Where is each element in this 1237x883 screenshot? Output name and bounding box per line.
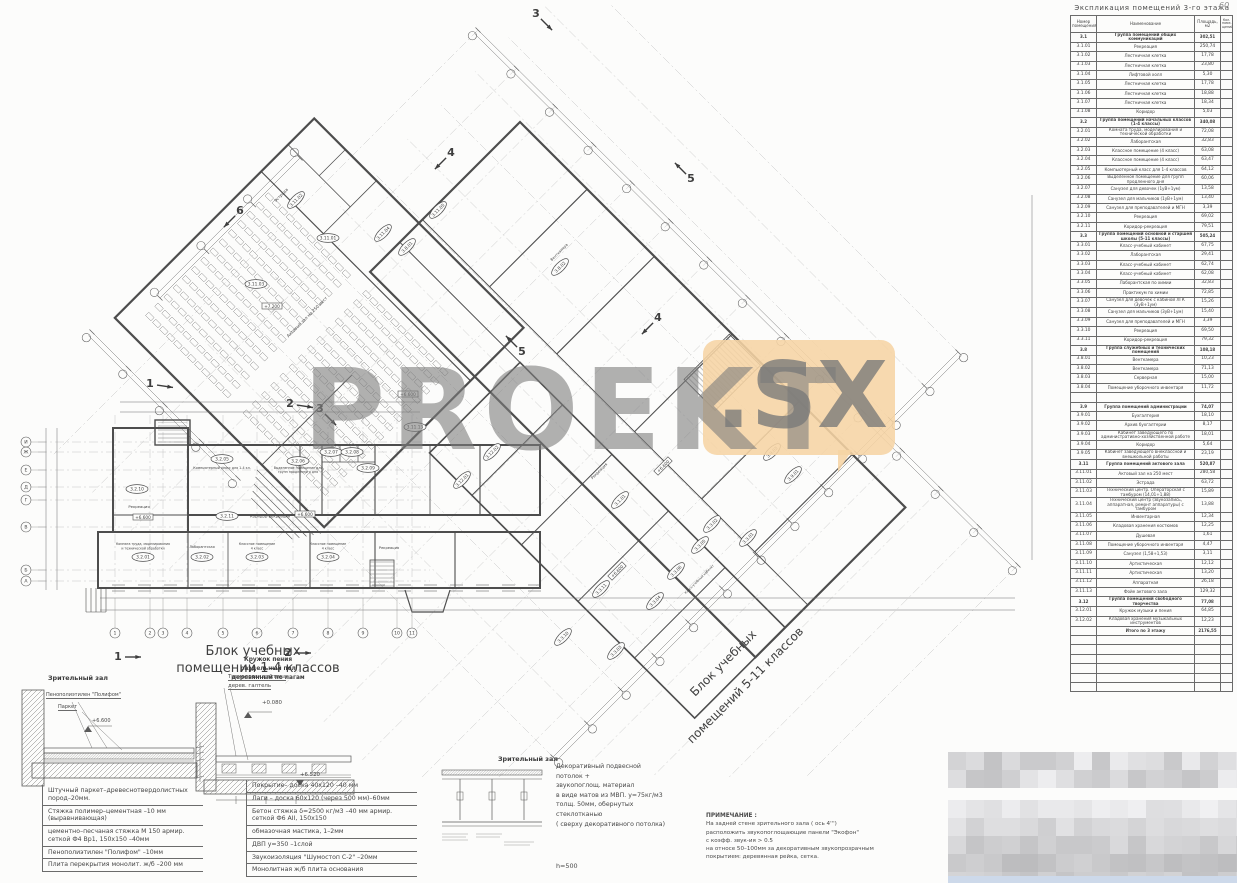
table-row [1071, 645, 1233, 654]
cell-name: Бухгалтерия [1097, 412, 1195, 421]
cell-name [1097, 673, 1195, 682]
cell-cnt [1221, 393, 1233, 402]
plan-label: Комната труда, моделирования [116, 542, 170, 546]
cell-cnt [1221, 374, 1233, 383]
table-row: 3.2.11Коридор-рекреация79,51 [1071, 222, 1233, 231]
layer-item: Штучный паркет–древеснотвердолистных пор… [43, 785, 203, 806]
cell-name: Рекреация [1097, 327, 1195, 336]
cell-area: 12,25 [1195, 522, 1221, 531]
cell-num [1071, 635, 1097, 644]
table-row: 3.12.01Кружок музыки и пения64,85 [1071, 607, 1233, 616]
cell-num: 3.3.11 [1071, 336, 1097, 345]
censor-cell [1128, 836, 1146, 854]
cell-name: Комната труда, моделирования и техническ… [1097, 127, 1195, 137]
cell-area: 11,72 [1195, 383, 1221, 392]
cell-name: Санузел (1,58+1,53) [1097, 550, 1195, 559]
svg-text:9: 9 [362, 631, 365, 637]
room-tag: 3.2.01 [132, 553, 154, 562]
cell-area: 2176,55 [1195, 626, 1221, 635]
cell-cnt [1221, 185, 1233, 194]
cell-name: Группа служебных и технических помещений [1097, 345, 1195, 355]
cell-area: 10,23 [1195, 355, 1221, 364]
cell-area: 8,17 [1195, 421, 1221, 430]
cell-area: 77,08 [1195, 597, 1221, 607]
cell-cnt [1221, 137, 1233, 146]
cell-area: 15,00 [1195, 374, 1221, 383]
table-row: 3.11.02Эстрада63,72 [1071, 478, 1233, 487]
cell-area: 18,34 [1195, 99, 1221, 108]
table-row: 3.3Группа помещений основной и старшей ш… [1071, 232, 1233, 242]
censor-cell [1218, 836, 1236, 854]
cell-name: Лестничная клетка [1097, 89, 1195, 98]
svg-text:В: В [24, 525, 27, 531]
cell-num: 3.3.09 [1071, 317, 1097, 326]
censor-cell [1200, 800, 1218, 818]
cell-area: 17,78 [1195, 80, 1221, 89]
table-row: 3.11.10Артистическая12,12 [1071, 559, 1233, 568]
room-tag: 3.2.11 [216, 512, 238, 521]
cell-name: Кабинет заведующего по административно-х… [1097, 430, 1195, 440]
table-row: 3.1.02Лестничная клетка17,78 [1071, 52, 1233, 61]
svg-text:10: 10 [394, 631, 400, 637]
censor-cell [1110, 752, 1128, 770]
cell-area: 23,19 [1195, 450, 1221, 460]
layer-item: Пенополиэтилен "Полифом" –10мм [43, 847, 203, 860]
table-row: 3.2.04Классное помещение (4 класс)63,47 [1071, 156, 1233, 165]
room-tag: 3.3.04 [644, 590, 666, 612]
layer-item: Покрытие– доска 40х120 –40 мм [247, 780, 417, 793]
room-tag: 3.11.01 [317, 234, 339, 243]
censor-cell [1002, 818, 1020, 836]
cell-cnt [1221, 156, 1233, 165]
table-row: 3.3.11Коридор-рекреация79,32 [1071, 336, 1233, 345]
cell-num: 3.12.02 [1071, 616, 1097, 626]
cell-area: 72,08 [1195, 127, 1221, 137]
cell-num: 3.11.06 [1071, 522, 1097, 531]
svg-text:6: 6 [256, 631, 259, 637]
cell-cnt [1221, 421, 1233, 430]
cell-name: Лестничная клетка [1097, 80, 1195, 89]
svg-text:7: 7 [292, 631, 295, 637]
cell-area [1195, 393, 1221, 402]
cell-area [1195, 664, 1221, 673]
detail-parquet-floor [22, 690, 204, 786]
cell-name: Санузел для мальчиков (1уВ+1ум) [1097, 194, 1195, 203]
cell-num: 3.9.02 [1071, 421, 1097, 430]
cell-cnt [1221, 498, 1233, 513]
table-row: 3.8.04Помещение уборочного инвентаря11,7… [1071, 383, 1233, 392]
layer-item: Звукоизоляция "Шумостоп С-2" –20мм [247, 852, 417, 865]
censor-cell [1056, 800, 1074, 818]
table-row: 3.3.04Класс-учебный кабинет62,08 [1071, 270, 1233, 279]
col-header-name: Наименование [1097, 16, 1195, 33]
cell-num: 3.2.10 [1071, 213, 1097, 222]
cell-cnt [1221, 175, 1233, 185]
room-tag: 3.2.08 [341, 448, 363, 457]
watermark-bubble-tail [838, 450, 852, 472]
table-row: 3.9.03Кабинет заведующего по администрат… [1071, 430, 1233, 440]
cell-name: Санузел для девочек с кабиной ЛГК (3уВ+1… [1097, 298, 1195, 308]
svg-text:+6.600: +6.600 [610, 564, 625, 579]
censor-cell [1182, 818, 1200, 836]
censor-cell [1200, 752, 1218, 770]
table-row: 3.3.05Лаборантская по химии32,83 [1071, 279, 1233, 288]
table-row: 3.2.08Санузел для мальчиков (1уВ+1ум)13,… [1071, 194, 1233, 203]
svg-text:+6.600: +6.600 [135, 515, 151, 520]
cell-name: Группа помещений общих коммуникаций [1097, 33, 1195, 43]
cell-area: 69,02 [1195, 213, 1221, 222]
elevation-mark: +6.600 [295, 511, 315, 517]
cell-num: 3.1.08 [1071, 108, 1097, 117]
cell-area: 5,30 [1195, 70, 1221, 79]
censor-cell [948, 800, 966, 818]
table-row: 3.2.01Комната труда, моделирования и тех… [1071, 127, 1233, 137]
cell-area: 13,20 [1195, 569, 1221, 578]
cell-area: 1,61 [1195, 531, 1221, 540]
cell-cnt [1221, 204, 1233, 213]
table-row [1071, 673, 1233, 682]
cell-area: 64,85 [1195, 607, 1221, 616]
detail1-title: Зрительный зал [48, 674, 108, 682]
cell-cnt [1221, 460, 1233, 469]
table-row: Итого по 3 этажу2176,55 [1071, 626, 1233, 635]
cell-name: Кабинет заведующего внеклассной и внешко… [1097, 450, 1195, 460]
cell-num: 3.8.02 [1071, 365, 1097, 374]
cell-name: Кладовая хранения костюмов [1097, 522, 1195, 531]
censor-cell [1056, 818, 1074, 836]
cell-cnt [1221, 260, 1233, 269]
cell-cnt [1221, 336, 1233, 345]
cell-area [1195, 654, 1221, 663]
cell-area: 5,64 [1195, 440, 1221, 449]
section-mark: 1 [114, 650, 141, 663]
plan-label: Классное помещение [310, 542, 346, 546]
cell-cnt [1221, 345, 1233, 355]
svg-text:1: 1 [114, 631, 117, 637]
cell-area: 520,87 [1195, 460, 1221, 469]
cell-cnt [1221, 664, 1233, 673]
cell-num: 3.3.08 [1071, 308, 1097, 317]
note-line: расположить звукопоглощающие панели "Эко… [706, 829, 956, 837]
cell-name: Коридор [1097, 108, 1195, 117]
cell-area: 108,18 [1195, 345, 1221, 355]
censor-cell [1200, 836, 1218, 854]
svg-text:3: 3 [532, 7, 540, 20]
cell-cnt [1221, 194, 1233, 203]
cell-name: Артистическая [1097, 569, 1195, 578]
svg-text:6: 6 [236, 204, 244, 217]
censor-cell [1182, 836, 1200, 854]
cell-cnt [1221, 308, 1233, 317]
cell-num: 3.1.06 [1071, 89, 1097, 98]
svg-text:8: 8 [327, 631, 330, 637]
table-row: 3.11.11Артистическая13,20 [1071, 569, 1233, 578]
table-row: 3.11.08Помещение уборочного инвентаря4,4… [1071, 541, 1233, 550]
censor-cell [1002, 800, 1020, 818]
cell-cnt [1221, 626, 1233, 635]
censor-cell [966, 800, 984, 818]
note-line: на относе 50–100мм за декоративным звуко… [706, 845, 956, 853]
room-tag: 3.2.04 [317, 553, 339, 562]
cell-num [1071, 682, 1097, 691]
svg-text:4: 4 [654, 311, 662, 324]
cell-name: Архив бухгалтерии [1097, 421, 1195, 430]
cell-num: 3.2.07 [1071, 185, 1097, 194]
cell-area: 32,83 [1195, 137, 1221, 146]
cell-cnt [1221, 165, 1233, 174]
table-row: 3.1.03Лестничная клетка23,80 [1071, 61, 1233, 70]
cell-cnt [1221, 478, 1233, 487]
cell-name: Санузел для преподавателей и МГН [1097, 317, 1195, 326]
cell-cnt [1221, 327, 1233, 336]
censor-cell [984, 752, 1002, 770]
detail1-callout-2: Паркет [58, 704, 77, 711]
svg-text:Е: Е [25, 468, 28, 474]
svg-text:3.2.07: 3.2.07 [324, 450, 338, 456]
cell-name: Класс-учебный кабинет [1097, 241, 1195, 250]
censor-cell [966, 854, 984, 872]
cell-area: 67,75 [1195, 241, 1221, 250]
detail3-scale: h=500 [556, 862, 578, 870]
table-row: 3.11.03Технический центр. Операторская с… [1071, 488, 1233, 498]
cell-num: 3.1.01 [1071, 42, 1097, 51]
table-row: 3.8.01Венткамера10,23 [1071, 355, 1233, 364]
censor-cell [1056, 770, 1074, 788]
censor-cell [1110, 770, 1128, 788]
censor-cell [966, 818, 984, 836]
cell-area: 3,39 [1195, 317, 1221, 326]
page-corner-mark: 60 [1219, 1, 1229, 10]
censor-cell [1056, 752, 1074, 770]
cell-cnt [1221, 42, 1233, 51]
table-row [1071, 682, 1233, 691]
cell-cnt [1221, 682, 1233, 691]
cell-cnt [1221, 645, 1233, 654]
table-row: 3.2.05Компьютерный класс для 1-4 классов… [1071, 165, 1233, 174]
cell-num: 3.8.03 [1071, 374, 1097, 383]
cell-cnt [1221, 587, 1233, 596]
cell-area: 18,88 [1195, 89, 1221, 98]
cell-cnt [1221, 117, 1233, 127]
svg-text:5: 5 [687, 172, 695, 185]
cell-num: 3.11.07 [1071, 531, 1097, 540]
censor-cell [1110, 818, 1128, 836]
cell-cnt [1221, 635, 1233, 644]
table-row: 3.1.01Рекреация250,74 [1071, 42, 1233, 51]
censor-cell [1110, 800, 1128, 818]
cell-num: 3.8.04 [1071, 383, 1097, 392]
cell-area: 15,26 [1195, 298, 1221, 308]
cell-cnt [1221, 61, 1233, 70]
cell-cnt [1221, 607, 1233, 616]
table-row: 3.8.03Серверная15,00 [1071, 374, 1233, 383]
section-mark: 4 [435, 146, 455, 169]
cell-area: 63,72 [1195, 478, 1221, 487]
cell-cnt [1221, 298, 1233, 308]
cell-num: 3.3.03 [1071, 260, 1097, 269]
cell-name: Лестничная клетка [1097, 52, 1195, 61]
censor-cell [984, 854, 1002, 872]
cell-num: 3.2.04 [1071, 156, 1097, 165]
cell-area: 13,58 [1195, 185, 1221, 194]
cell-cnt [1221, 279, 1233, 288]
cell-area: 12,34 [1195, 512, 1221, 521]
cell-name [1097, 635, 1195, 644]
cell-area: 3,39 [1195, 204, 1221, 213]
table-row: 3.2.02Лаборантская32,83 [1071, 137, 1233, 146]
censor-cell [1164, 818, 1182, 836]
table-row [1071, 664, 1233, 673]
cell-num: 3.9.01 [1071, 412, 1097, 421]
layer-item: Лаги – доска 60х120 (через 500 мм)–60мм [247, 793, 417, 806]
plan-label: Класс-учебный кабинет [684, 564, 715, 595]
censor-cell [1182, 752, 1200, 770]
censor-cell [1074, 854, 1092, 872]
cell-name: Санузел для девочек (1уВ+1ум) [1097, 185, 1195, 194]
table-row: 3.9Группа помещений администрации74,07 [1071, 402, 1233, 411]
table-row: 3.3.08Санузел для мальчиков (3уВ+1ум)15,… [1071, 308, 1233, 317]
detail1-layer-list: Штучный паркет–древеснотвердолистных пор… [42, 785, 203, 872]
elevation-mark: +6.600 [133, 514, 153, 520]
layer-item: обмазочная мастика, 1–2мм [247, 826, 417, 839]
cell-name: Артистическая [1097, 559, 1195, 568]
cell-num: 3.3.06 [1071, 288, 1097, 297]
cell-cnt [1221, 89, 1233, 98]
cell-cnt [1221, 616, 1233, 626]
section-mark: 5 [675, 163, 695, 185]
censor-cell [1020, 800, 1038, 818]
table-row: 3.11.12Аппаратная26,18 [1071, 578, 1233, 587]
note-label: ПРИМЕЧАНИЕ : [706, 812, 956, 820]
cell-area: 63,08 [1195, 147, 1221, 156]
cell-name: Выделенное помещение для групп продленно… [1097, 175, 1195, 185]
cell-num: 3.11.04 [1071, 498, 1097, 513]
cell-name: Лаборантская [1097, 251, 1195, 260]
col-header-area: Площадь, м2 [1195, 16, 1221, 33]
detail-suspended-ceiling [442, 770, 542, 845]
cell-num: 3.1.02 [1071, 52, 1097, 61]
table-row: 3.3.01Класс-учебный кабинет67,75 [1071, 241, 1233, 250]
censor-cell [1056, 854, 1074, 872]
censor-cell [948, 818, 966, 836]
cell-name: Лестничная клетка [1097, 61, 1195, 70]
room-tag: 3.2.05 [211, 455, 233, 464]
col-header-number: Номер помещения [1071, 16, 1097, 33]
table-row: 3.3.02Лаборантская29,41 [1071, 251, 1233, 260]
cell-area: 64,12 [1195, 165, 1221, 174]
cell-cnt [1221, 232, 1233, 242]
censor-cell [948, 854, 966, 872]
censor-cell [1038, 818, 1056, 836]
svg-text:2: 2 [284, 646, 292, 659]
svg-text:3.2.10: 3.2.10 [130, 487, 144, 493]
cell-num: 3.8 [1071, 345, 1097, 355]
cell-cnt [1221, 654, 1233, 663]
room-tag: 3.1.01 [609, 489, 631, 511]
explication-table: Номер помещения Наименование Площадь, м2… [1070, 15, 1233, 692]
cell-name: Группа помещений актового зала [1097, 460, 1195, 469]
section-mark: 4 [642, 311, 662, 334]
censor-cell [966, 770, 984, 788]
cell-num: 3.1.03 [1071, 61, 1097, 70]
cell-cnt [1221, 108, 1233, 117]
svg-text:Б: Б [24, 568, 27, 574]
watermark-bubble [703, 340, 895, 455]
cell-cnt [1221, 383, 1233, 392]
cell-name [1097, 664, 1195, 673]
table-row: 3.1.06Лестничная клетка18,88 [1071, 89, 1233, 98]
censor-cell [1002, 854, 1020, 872]
svg-text:2: 2 [286, 397, 294, 410]
svg-text:1: 1 [146, 377, 154, 390]
cell-area: 12,23 [1195, 616, 1221, 626]
cell-area: 280,58 [1195, 469, 1221, 478]
room-tag: 3.2.06 [287, 457, 309, 466]
detail2-elevation-top: +0.080 [262, 700, 282, 706]
cell-area: 4,47 [1195, 541, 1221, 550]
room-tag: 3.3.10 [552, 626, 574, 648]
table-row: 3.2Группа помещений начальных классов (1… [1071, 117, 1233, 127]
plan-label: Лаборантская [189, 545, 214, 549]
cell-num: 3.1.04 [1071, 70, 1097, 79]
cell-name: Серверная [1097, 374, 1195, 383]
censored-region [948, 748, 1237, 883]
censor-cell [1146, 770, 1164, 788]
detail2-layer-list: Покрытие– доска 40х120 –40 ммЛаги – доск… [246, 780, 417, 877]
plan-label: Рекреация [128, 504, 149, 509]
cell-num: 3.11.03 [1071, 488, 1097, 498]
censor-cell [1146, 836, 1164, 854]
drawing-sheet: 1234567891011АБВГДЕЖИ 3.2.103.2.053.2.06… [0, 0, 1237, 883]
cell-area [1195, 673, 1221, 682]
cell-num: 3.3.04 [1071, 270, 1097, 279]
table-row [1071, 635, 1233, 644]
cell-num [1071, 654, 1097, 663]
table-row: 3.2.10Рекреация69,02 [1071, 213, 1233, 222]
cell-num: 3.2.06 [1071, 175, 1097, 185]
plan-label: групп продленного дня [278, 470, 318, 474]
cell-num: 3.2.08 [1071, 194, 1097, 203]
censor-cell [1218, 752, 1236, 770]
table-row: 3.11Группа помещений актового зала520,87 [1071, 460, 1233, 469]
plan-label: 4 класс [251, 547, 264, 551]
censor-cell [1146, 800, 1164, 818]
censor-cell [1218, 854, 1236, 872]
svg-text:3.2.03: 3.2.03 [250, 555, 264, 561]
cell-area: 13,88 [1195, 498, 1221, 513]
censor-cell [1182, 770, 1200, 788]
table-row: 3.8.02Венткамера71,13 [1071, 365, 1233, 374]
censor-cell [1200, 854, 1218, 872]
censor-cell [1164, 836, 1182, 854]
cell-area: 340,08 [1195, 117, 1221, 127]
cell-num: 3.9.04 [1071, 440, 1097, 449]
svg-text:5: 5 [518, 345, 526, 358]
table-row: 3.3.10Рекреация69,50 [1071, 327, 1233, 336]
cell-area: 13,40 [1195, 194, 1221, 203]
cell-area: 302,51 [1195, 33, 1221, 43]
table-row: 3.2.07Санузел для девочек (1уВ+1ум)13,58 [1071, 185, 1233, 194]
cell-name: Инвентарная [1097, 512, 1195, 521]
section-mark: 5 [506, 336, 526, 358]
detail1-elevation: +6.600 [92, 718, 111, 724]
cell-cnt [1221, 541, 1233, 550]
cell-area: 5,03 [1195, 108, 1221, 117]
table-row: 3.1.04Лифтовой холл5,30 [1071, 70, 1233, 79]
cell-cnt [1221, 127, 1233, 137]
cell-num: 3.11.11 [1071, 569, 1097, 578]
table-row: 3.9.01Бухгалтерия18,10 [1071, 412, 1233, 421]
